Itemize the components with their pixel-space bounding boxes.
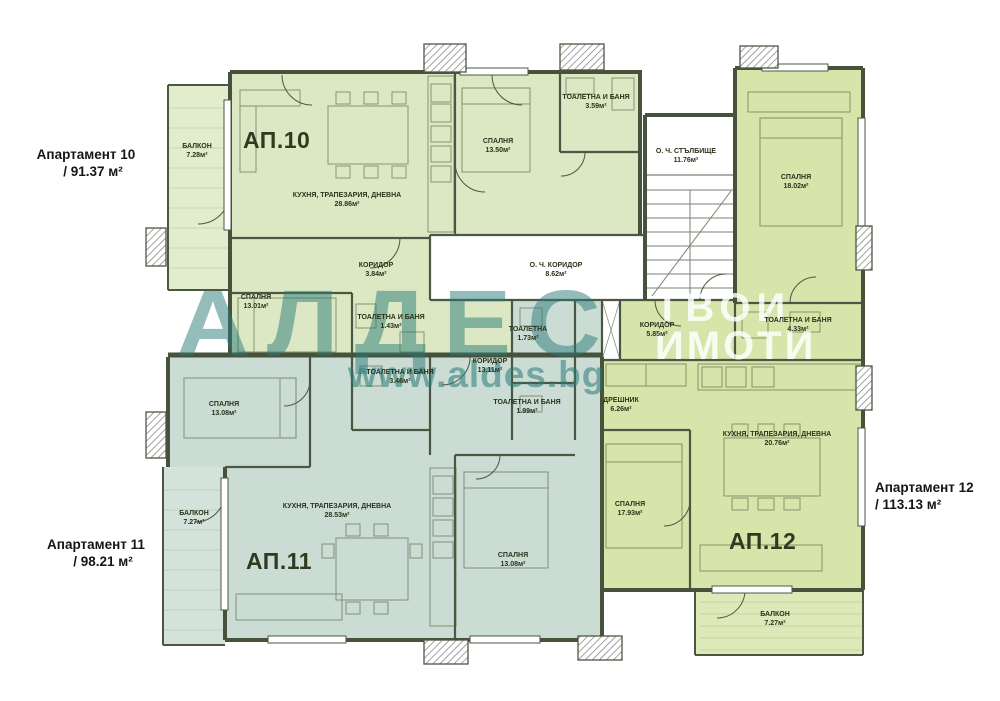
room-label-bedroom12a: СПАЛНЯ18.02м²	[756, 174, 836, 191]
plan-label-ap11: АП.11	[246, 548, 312, 575]
plan-label-ap10: АП.10	[243, 127, 310, 154]
room-label-bedroom11a: СПАЛНЯ13.08м²	[184, 401, 264, 418]
apartment-12-area: / 113.13 м²	[875, 496, 997, 513]
floorplan-page: АЛДЕС ТВОИ ИМОТИ www.aldes.bg Апартамент…	[0, 0, 1000, 701]
apartment-11-summary: Апартамент 11 / 98.21 м²	[40, 536, 152, 570]
room-label-bath11a: ТОАЛЕТНА И БАНЯ3.46м²	[340, 369, 460, 386]
apartment-12-name: Апартамент 12	[875, 479, 997, 496]
room-label-balkon12: БАЛКОН7.27м²	[735, 611, 815, 628]
room-label-bedroom10b: СПАЛНЯ13.01м²	[216, 294, 296, 311]
room-label-kitchen10: КУХНЯ, ТРАПЕЗАРИЯ, ДНЕВНА28.86м²	[257, 192, 437, 209]
room-label-stairs: О. Ч. СТЪЛБИЩЕ11.76м²	[626, 148, 746, 165]
room-label-bedroom12b: СПАЛНЯ17.93м²	[590, 501, 670, 518]
labels-layer: Апартамент 10 / 91.37 м² Апартамент 11 /…	[0, 0, 1000, 701]
room-label-bedroom11b: СПАЛНЯ13.08м²	[473, 552, 553, 569]
room-label-dreshnik: ДРЕШНИК6.26м²	[581, 397, 661, 414]
room-label-kitchen12: КУХНЯ, ТРАПЕЗАРИЯ, ДНЕВНА20.76м²	[687, 431, 867, 448]
room-label-koridor12: КОРИДОР5.85м²	[617, 322, 697, 339]
apartment-10-summary: Апартамент 10 / 91.37 м²	[30, 146, 142, 180]
room-label-bath12: ТОАЛЕТНА И БАНЯ4.33м²	[738, 317, 858, 334]
apartment-10-name: Апартамент 10	[30, 146, 142, 163]
apartment-11-name: Апартамент 11	[40, 536, 152, 553]
room-label-bath10b: ТОАЛЕТНА И БАНЯ1.43м²	[331, 314, 451, 331]
room-label-bath10a: ТОАЛЕТНА И БАНЯ3.59м²	[536, 94, 656, 111]
room-label-toilet11: ТОАЛЕТНА1.73м²	[488, 326, 568, 343]
room-label-kitchen11: КУХНЯ, ТРАПЕЗАРИЯ, ДНЕВНА28.53м²	[247, 503, 427, 520]
apartment-10-area: / 91.37 м²	[30, 163, 142, 180]
apartment-11-area: / 98.21 м²	[40, 553, 152, 570]
room-label-bath11b: ТОАЛЕТНА И БАНЯ1.99м²	[467, 399, 587, 416]
room-label-koridor10: КОРИДОР3.84м²	[336, 262, 416, 279]
room-label-balkon11: БАЛКОН7.27м²	[159, 510, 229, 527]
room-label-corridor_och: О. Ч. КОРИДОР8.62м²	[496, 262, 616, 279]
plan-label-ap12: АП.12	[729, 528, 796, 555]
room-label-bedroom10a: СПАЛНЯ13.50м²	[458, 138, 538, 155]
room-label-koridor11: КОРИДОР13.11м²	[450, 358, 530, 375]
apartment-12-summary: Апартамент 12 / 113.13 м²	[875, 479, 997, 513]
room-label-balkon10: БАЛКОН7.28м²	[162, 143, 232, 160]
